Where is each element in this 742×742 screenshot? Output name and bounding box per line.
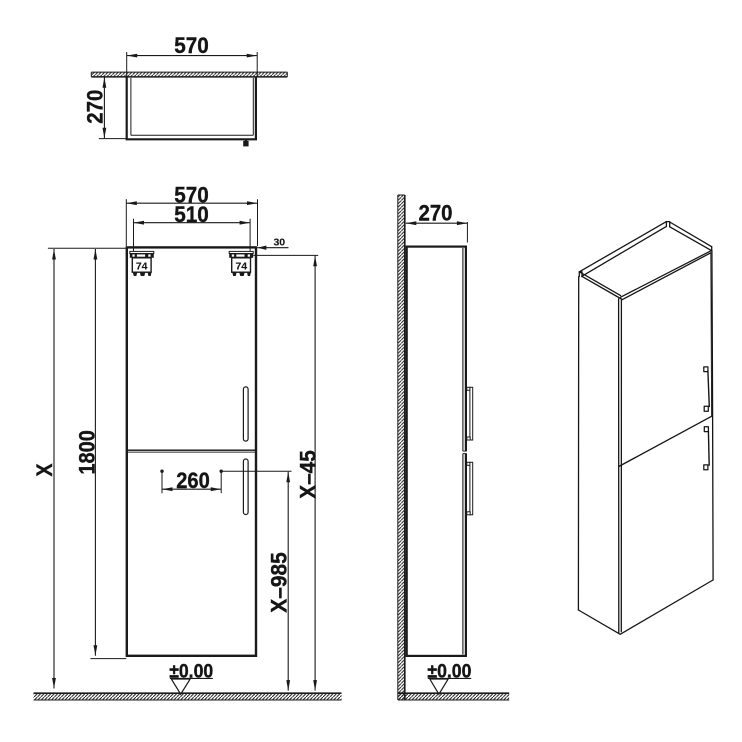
svg-text:74: 74 bbox=[235, 261, 247, 273]
svg-text:74: 74 bbox=[136, 261, 148, 273]
svg-text:260: 260 bbox=[176, 468, 210, 493]
svg-text:30: 30 bbox=[273, 236, 285, 248]
svg-text:270: 270 bbox=[419, 201, 453, 226]
svg-text:570: 570 bbox=[174, 33, 209, 58]
svg-text:X–45: X–45 bbox=[296, 450, 321, 499]
svg-text:±0.00: ±0.00 bbox=[169, 662, 213, 683]
svg-text:X–985: X–985 bbox=[267, 552, 292, 613]
svg-text:510: 510 bbox=[174, 202, 209, 227]
svg-text:270: 270 bbox=[83, 90, 108, 124]
svg-text:±0.00: ±0.00 bbox=[427, 662, 471, 683]
svg-text:X: X bbox=[32, 464, 57, 477]
svg-text:1800: 1800 bbox=[75, 430, 100, 475]
